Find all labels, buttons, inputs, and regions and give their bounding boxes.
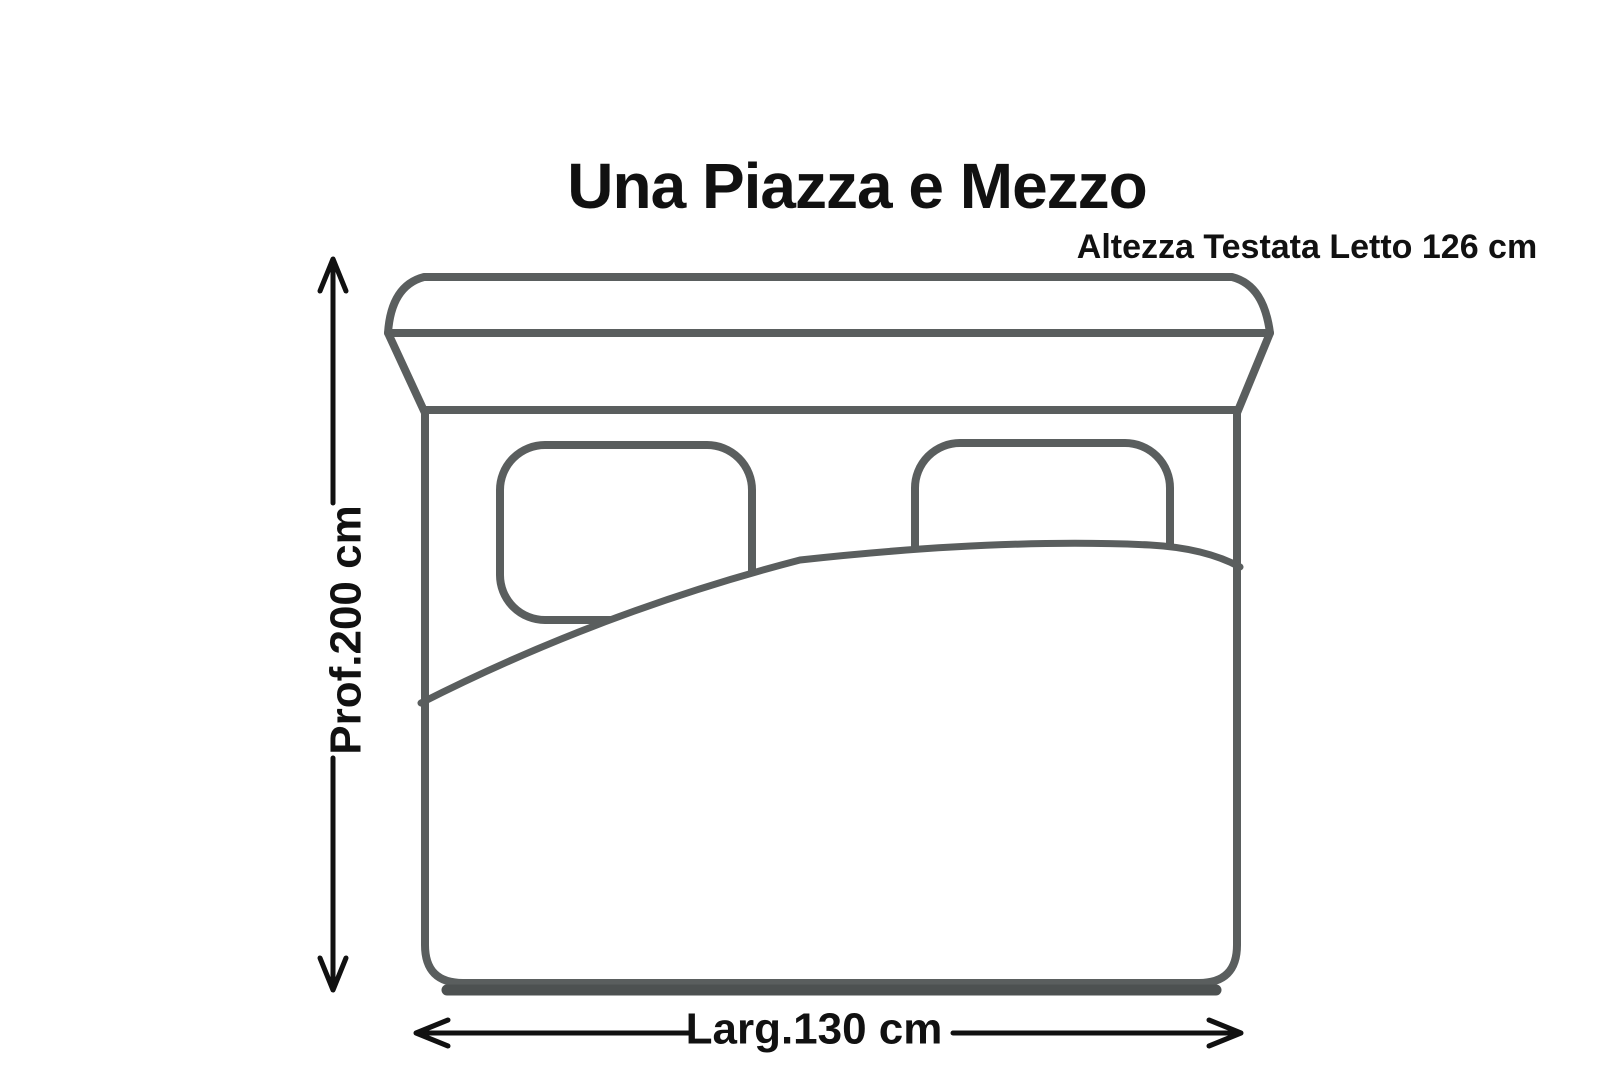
page-title: Una Piazza e Mezzo	[567, 150, 1147, 224]
blanket-fill	[430, 543, 1233, 790]
headboard-outline	[388, 277, 1270, 413]
headboard-height-label: Altezza Testata Letto 126 cm	[1077, 228, 1537, 267]
bed-outline-group	[388, 277, 1270, 990]
depth-dimension-label: Prof.200 cm	[322, 505, 373, 754]
width-dimension-label: Larg.130 cm	[686, 1005, 943, 1056]
bed-size-diagram-page: Una Piazza e Mezzo Altezza Testata Letto…	[0, 0, 1600, 1070]
